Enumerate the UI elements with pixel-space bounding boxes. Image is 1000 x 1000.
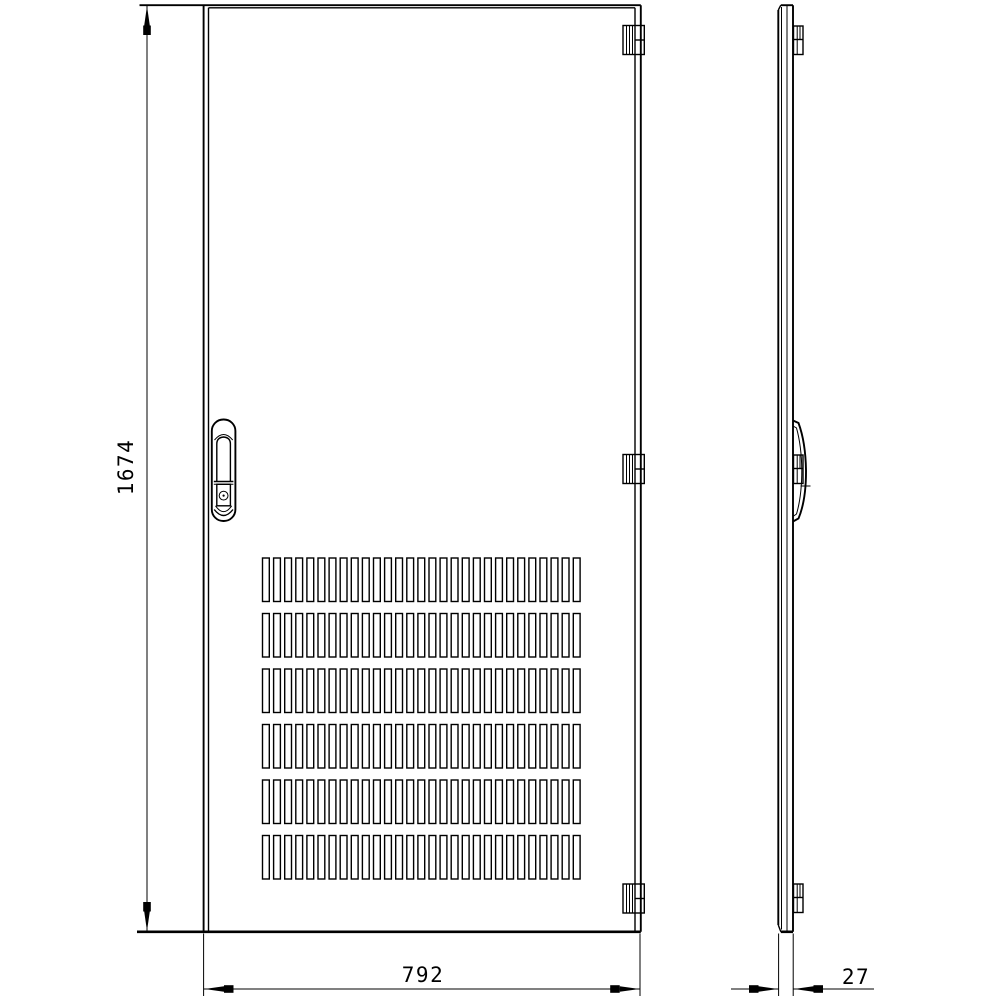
depth-dimension: 27 — [731, 934, 874, 997]
vent-slot — [440, 780, 447, 824]
vent-slot — [351, 780, 358, 824]
vent-slot — [485, 780, 492, 824]
vent-slot — [351, 558, 358, 602]
vent-slot — [362, 614, 369, 658]
vent-slot — [418, 725, 425, 769]
handle-bottom-arc-outer — [214, 510, 233, 516]
vent-slot — [396, 725, 403, 769]
vent-slot — [462, 669, 469, 713]
vent-slot — [296, 669, 303, 713]
vent-slot — [340, 669, 347, 713]
vent-slot — [462, 614, 469, 658]
technical-drawing: 1674 792 27 — [0, 0, 1000, 1000]
vent-slot — [285, 780, 292, 824]
vent-slot — [418, 669, 425, 713]
vent-slot — [385, 614, 392, 658]
side-handle-profile — [793, 421, 811, 522]
vent-slot — [407, 836, 414, 880]
drawing-canvas: 1674 792 27 — [0, 0, 1000, 1000]
vent-slot — [551, 614, 558, 658]
vent-slot — [385, 836, 392, 880]
vent-slot — [274, 780, 281, 824]
vent-slot — [451, 836, 458, 880]
depth-dim-arrow-right-base — [814, 985, 824, 993]
vent-slot — [329, 558, 336, 602]
vent-slot — [473, 558, 480, 602]
height-dim-arrow-down — [144, 912, 150, 932]
vent-slot — [362, 669, 369, 713]
vent-slot — [451, 614, 458, 658]
vent-slot — [307, 836, 314, 880]
vent-slot — [340, 558, 347, 602]
vent-slot — [407, 558, 414, 602]
vent-slot — [396, 669, 403, 713]
vent-slot — [462, 780, 469, 824]
vent-slot — [263, 614, 270, 658]
vent-slot — [285, 725, 292, 769]
vent-slot — [407, 669, 414, 713]
vent-slot — [562, 558, 569, 602]
vent-slot — [473, 614, 480, 658]
vent-slot — [518, 669, 525, 713]
vent-slot — [374, 558, 381, 602]
vent-slot — [285, 558, 292, 602]
vent-slot — [451, 725, 458, 769]
vent-slot — [451, 780, 458, 824]
vent-slot — [462, 725, 469, 769]
vent-slot — [274, 836, 281, 880]
vent-slot — [351, 669, 358, 713]
vent-slot — [496, 558, 503, 602]
vent-slot — [440, 558, 447, 602]
vent-slot — [418, 780, 425, 824]
side-handle-outer-curve — [793, 421, 806, 522]
vent-slot — [462, 836, 469, 880]
vent-slot — [429, 780, 436, 824]
vent-slot — [562, 669, 569, 713]
vent-slot — [562, 836, 569, 880]
vent-slot — [351, 614, 358, 658]
vent-slot — [263, 836, 270, 880]
vent-slot — [374, 669, 381, 713]
vent-slot — [496, 725, 503, 769]
vent-slot — [496, 614, 503, 658]
vent-slot — [451, 669, 458, 713]
vent-slot — [529, 558, 536, 602]
vent-slot — [418, 614, 425, 658]
vent-slot — [351, 725, 358, 769]
vent-slot — [573, 725, 580, 769]
vent-slot — [396, 836, 403, 880]
vent-slot — [529, 836, 536, 880]
vent-slot — [551, 669, 558, 713]
door-handle-lock — [212, 420, 236, 522]
vent-slot — [307, 614, 314, 658]
vent-slot — [518, 558, 525, 602]
vent-slot — [485, 614, 492, 658]
vent-slot — [507, 836, 514, 880]
vent-slot — [385, 669, 392, 713]
vent-slot — [507, 558, 514, 602]
vent-slot — [473, 669, 480, 713]
vent-slot — [285, 836, 292, 880]
vent-slot — [507, 725, 514, 769]
vent-slot — [429, 558, 436, 602]
side-bottom-step — [778, 925, 781, 932]
vent-slot — [374, 780, 381, 824]
vent-slot — [263, 558, 270, 602]
vent-slot — [540, 558, 547, 602]
vent-slot — [318, 836, 325, 880]
vent-slot — [307, 669, 314, 713]
depth-dim-arrow-left — [759, 986, 779, 992]
side-top-chamfer — [778, 5, 781, 10]
vent-slot — [407, 780, 414, 824]
depth-dim-arrow-right — [794, 986, 814, 992]
vent-slot — [540, 780, 547, 824]
vent-slot — [418, 836, 425, 880]
vent-slot — [485, 725, 492, 769]
vent-slot — [518, 836, 525, 880]
vent-slot — [551, 780, 558, 824]
vent-slot — [318, 614, 325, 658]
vent-slot — [385, 725, 392, 769]
vent-slot — [573, 614, 580, 658]
vent-slot — [573, 669, 580, 713]
side-hinge-bottom — [794, 884, 804, 913]
vent-slot — [496, 780, 503, 824]
vent-slot — [540, 725, 547, 769]
vent-slot — [329, 669, 336, 713]
vent-slot — [529, 614, 536, 658]
vent-slot — [496, 836, 503, 880]
vent-slot — [573, 780, 580, 824]
vent-slot — [362, 725, 369, 769]
vent-slot — [451, 558, 458, 602]
width-dim-arrow-left-base — [224, 985, 234, 993]
vent-slot — [440, 836, 447, 880]
vent-slot — [573, 836, 580, 880]
vent-slot — [573, 558, 580, 602]
vent-slot — [329, 614, 336, 658]
vent-slot — [296, 780, 303, 824]
vent-slot — [396, 614, 403, 658]
vent-slot — [340, 780, 347, 824]
vent-slot — [485, 669, 492, 713]
vent-slot — [318, 558, 325, 602]
height-dim-arrow-up-base — [143, 26, 151, 36]
vent-slot — [529, 669, 536, 713]
vent-slot — [529, 725, 536, 769]
vent-slot — [507, 669, 514, 713]
vent-slot — [362, 558, 369, 602]
vent-slot — [285, 614, 292, 658]
vent-slot — [518, 725, 525, 769]
vent-slot — [385, 558, 392, 602]
handle-grip-bar — [217, 437, 231, 482]
vent-slot — [340, 725, 347, 769]
vent-slot — [429, 725, 436, 769]
vent-slot — [296, 614, 303, 658]
vent-slot — [329, 725, 336, 769]
width-dimension: 792 — [204, 934, 640, 997]
vent-slot — [362, 780, 369, 824]
vent-slot — [540, 669, 547, 713]
vent-slot — [362, 836, 369, 880]
vent-slot — [473, 836, 480, 880]
vent-slot — [396, 780, 403, 824]
vent-slot — [429, 669, 436, 713]
depth-dimension-label: 27 — [842, 965, 870, 989]
vent-slot — [562, 780, 569, 824]
vent-slot — [518, 614, 525, 658]
vent-slot — [407, 614, 414, 658]
vent-slot — [263, 669, 270, 713]
vent-slot — [507, 614, 514, 658]
vent-slot — [407, 725, 414, 769]
height-dimension: 1674 — [114, 6, 151, 931]
vent-slot — [551, 558, 558, 602]
vent-slot — [485, 836, 492, 880]
vent-slot — [318, 669, 325, 713]
height-dim-arrow-up — [144, 6, 150, 26]
vent-slot — [274, 669, 281, 713]
vent-slot — [329, 780, 336, 824]
vent-grid — [263, 558, 581, 879]
vent-slot — [551, 725, 558, 769]
width-dimension-label: 792 — [402, 963, 444, 987]
vent-slot — [274, 614, 281, 658]
vent-slot — [507, 780, 514, 824]
vent-slot — [496, 669, 503, 713]
vent-slot — [485, 558, 492, 602]
height-dim-arrow-down-base — [143, 902, 151, 912]
vent-slot — [340, 614, 347, 658]
width-dim-arrow-right — [620, 986, 640, 992]
width-dim-arrow-left — [205, 986, 225, 992]
vent-slot — [396, 558, 403, 602]
vent-slot — [473, 725, 480, 769]
vent-slot — [562, 614, 569, 658]
vent-slot — [540, 836, 547, 880]
height-dimension-label: 1674 — [114, 439, 138, 496]
vent-slot — [307, 558, 314, 602]
vent-slot — [440, 669, 447, 713]
vent-slot — [318, 780, 325, 824]
vent-slot — [551, 836, 558, 880]
vent-slot — [562, 725, 569, 769]
vent-slot — [274, 558, 281, 602]
vent-slot — [374, 725, 381, 769]
side-view — [778, 5, 810, 932]
vent-slot — [462, 558, 469, 602]
vent-slot — [296, 725, 303, 769]
vent-slot — [329, 836, 336, 880]
vent-slot — [318, 725, 325, 769]
vent-slot — [307, 725, 314, 769]
handle-bottom-arc-inner — [216, 506, 232, 512]
vent-slot — [374, 836, 381, 880]
vent-slot — [263, 725, 270, 769]
front-view — [137, 5, 644, 932]
vent-slot — [307, 780, 314, 824]
vent-slot — [429, 614, 436, 658]
vent-slot — [351, 836, 358, 880]
vent-slot — [374, 614, 381, 658]
vent-slot — [540, 614, 547, 658]
depth-dim-arrow-left-base — [749, 985, 759, 993]
vent-slot — [440, 614, 447, 658]
vent-slot — [473, 780, 480, 824]
vent-slot — [296, 558, 303, 602]
vent-slot — [340, 836, 347, 880]
vent-slot — [518, 780, 525, 824]
width-dim-arrow-right-base — [610, 985, 620, 993]
vent-slot — [529, 780, 536, 824]
vent-slot — [418, 558, 425, 602]
vent-slot — [385, 780, 392, 824]
vent-slot — [429, 836, 436, 880]
vent-slot — [274, 725, 281, 769]
keyhole-dot — [223, 495, 225, 497]
vent-slot — [440, 725, 447, 769]
vent-slot — [263, 780, 270, 824]
vent-slot — [296, 836, 303, 880]
side-hinge-top — [794, 26, 804, 55]
vent-slot — [285, 669, 292, 713]
